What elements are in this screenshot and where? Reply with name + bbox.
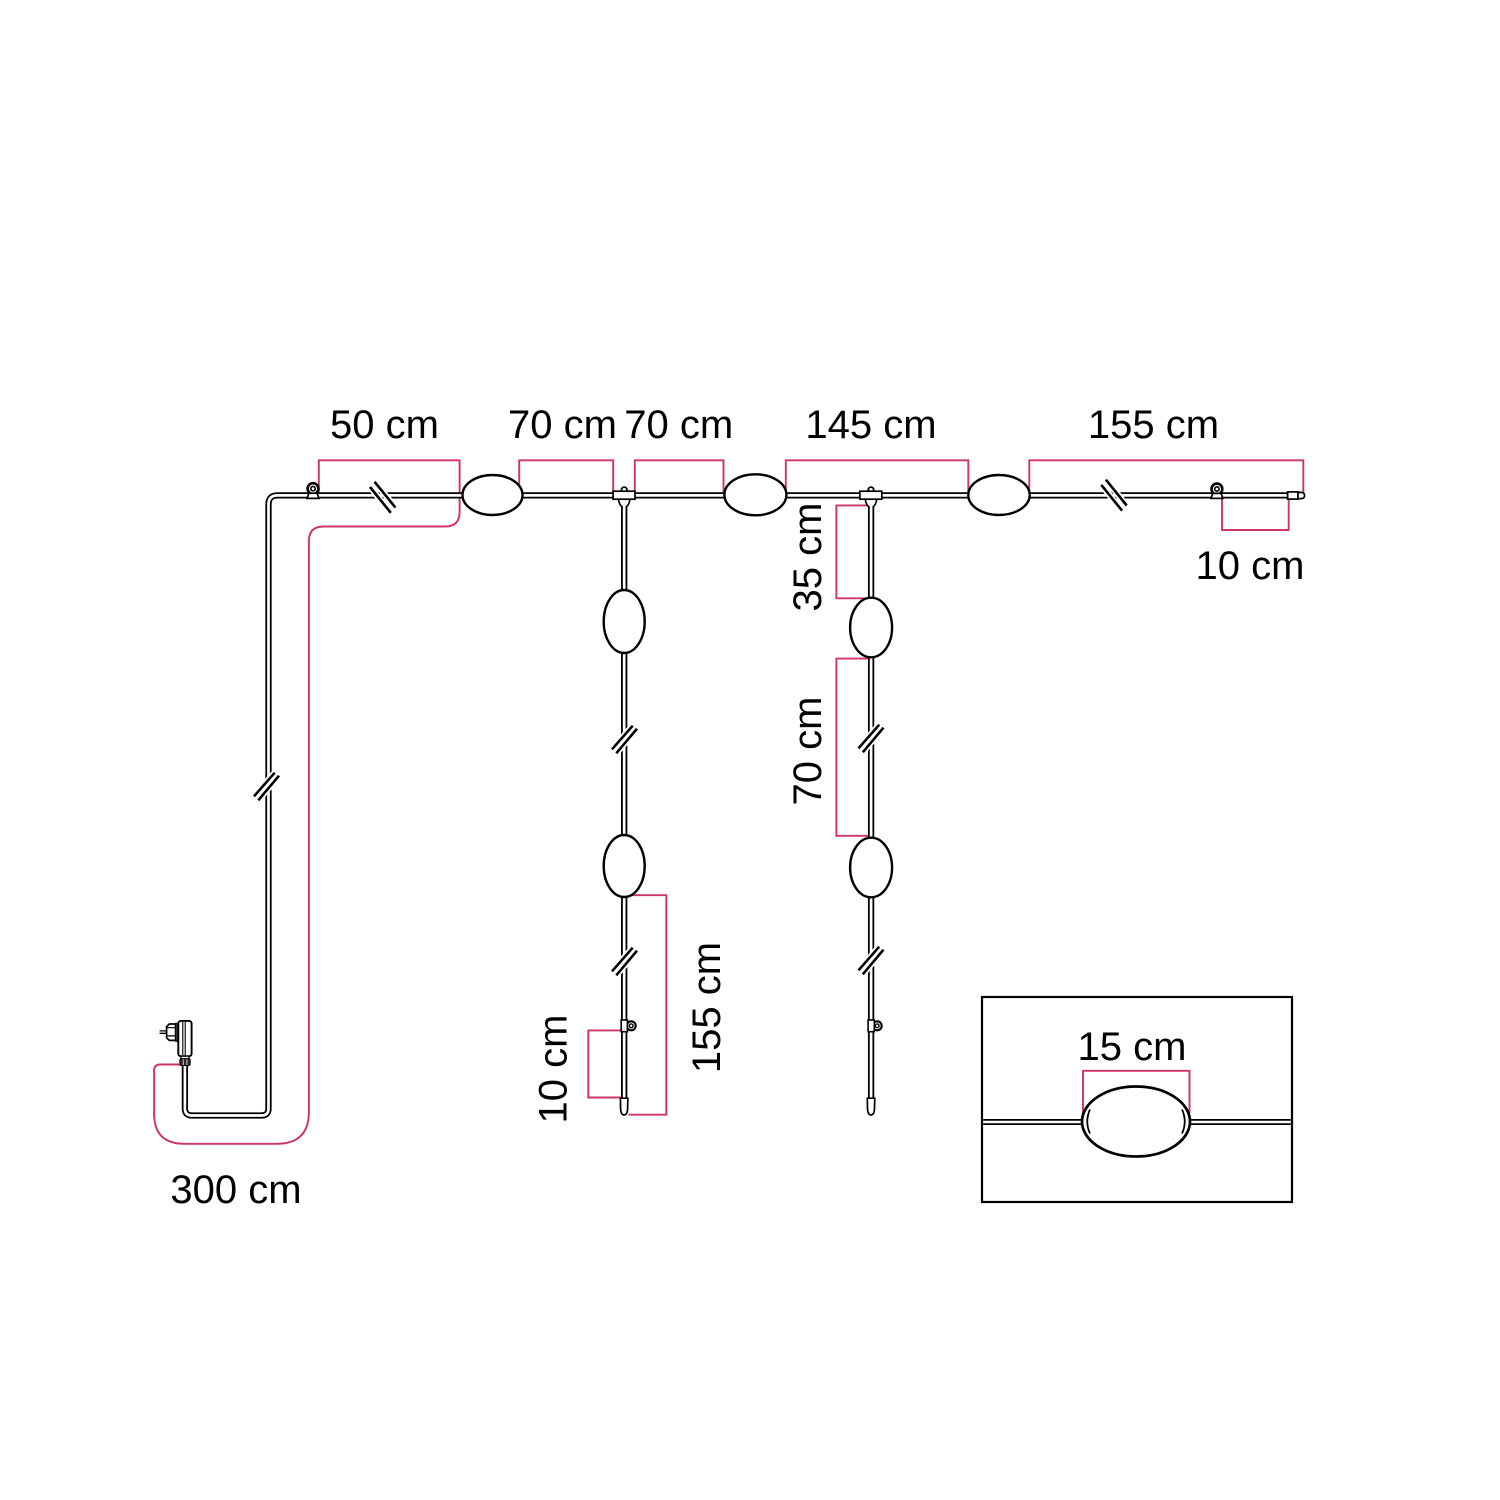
svg-text:155 cm: 155 cm — [1088, 403, 1219, 447]
svg-text:35 cm: 35 cm — [786, 503, 830, 612]
svg-text:300 cm: 300 cm — [170, 1168, 301, 1212]
svg-text:50 cm: 50 cm — [330, 403, 439, 447]
svg-text:155 cm: 155 cm — [685, 942, 729, 1073]
svg-text:10 cm: 10 cm — [531, 1015, 575, 1124]
svg-text:10 cm: 10 cm — [1196, 544, 1305, 588]
svg-text:70 cm: 70 cm — [508, 403, 617, 447]
svg-text:145 cm: 145 cm — [805, 403, 936, 447]
svg-text:70 cm: 70 cm — [624, 403, 733, 447]
svg-text:70 cm: 70 cm — [786, 697, 830, 806]
svg-text:15 cm: 15 cm — [1078, 1025, 1187, 1069]
